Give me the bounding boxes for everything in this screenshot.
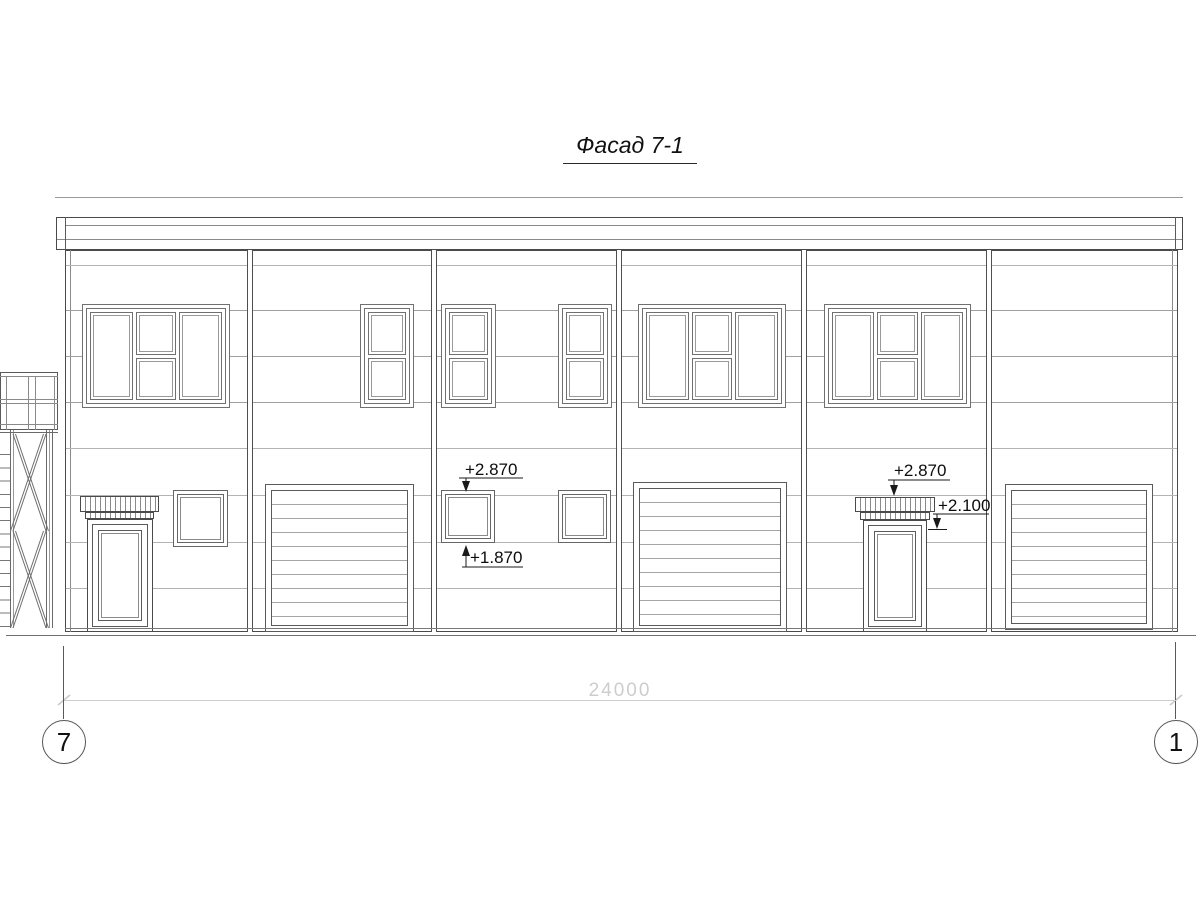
grid-extension-line-left bbox=[63, 646, 64, 719]
annex-glazing-bar bbox=[0, 376, 58, 377]
annex-glazing bbox=[0, 372, 58, 430]
window-pane bbox=[179, 312, 222, 400]
annex-rail bbox=[49, 430, 50, 628]
facade-elevation-drawing: Фасад 7-1 bbox=[0, 0, 1200, 900]
window-pane bbox=[177, 494, 224, 543]
large-window-bay5 bbox=[824, 304, 971, 408]
annex-mullion bbox=[54, 376, 55, 430]
wall-right-inner-line bbox=[1172, 250, 1173, 632]
grid-axis-circle-right: 1 bbox=[1154, 720, 1198, 764]
grid-axis-label-right: 1 bbox=[1169, 727, 1183, 758]
annex-rail bbox=[52, 430, 53, 628]
ladder bbox=[0, 442, 10, 629]
window-pane bbox=[877, 358, 917, 401]
annex-glazing-bar bbox=[0, 399, 58, 400]
window-pane bbox=[646, 312, 689, 400]
small-window-bay1 bbox=[173, 490, 228, 547]
door-canopy-right-upper bbox=[855, 497, 935, 512]
annex-rail bbox=[46, 430, 47, 628]
grid-axis-label-left: 7 bbox=[57, 727, 71, 758]
window-mid-section bbox=[692, 312, 733, 400]
drawing-title: Фасад 7-1 bbox=[563, 132, 697, 164]
parapet-right-cap-line bbox=[1175, 217, 1176, 250]
parapet-band bbox=[56, 217, 1183, 250]
narrow-window-bay3-right bbox=[558, 304, 612, 408]
window-pane bbox=[368, 312, 406, 355]
window-pane bbox=[90, 312, 133, 400]
window-pane bbox=[566, 312, 604, 355]
column-line bbox=[616, 250, 622, 632]
annex-mullion bbox=[28, 376, 29, 430]
window-pane bbox=[692, 358, 733, 401]
entry-door-right bbox=[863, 520, 927, 632]
garage-door-bay4 bbox=[633, 482, 787, 632]
large-window-bay1 bbox=[82, 304, 230, 408]
window-frame bbox=[828, 308, 967, 404]
annex-glazing-bar bbox=[0, 424, 58, 425]
dimension-label: 24000 bbox=[568, 680, 672, 702]
small-window-bay3-right bbox=[558, 490, 611, 543]
small-window-bay3-left bbox=[441, 490, 495, 543]
elevation-annotation-right-bottom: +2.100 bbox=[938, 496, 990, 516]
window-pane bbox=[449, 358, 488, 401]
window-mid-section bbox=[877, 312, 917, 400]
parapet-left-cap-line bbox=[65, 217, 66, 250]
window-pane bbox=[832, 312, 874, 400]
window-pane bbox=[877, 312, 917, 355]
annex-mullion bbox=[35, 376, 36, 430]
door-leaf bbox=[874, 531, 916, 621]
window-mid-section bbox=[136, 312, 177, 400]
door-canopy-left-upper bbox=[80, 496, 159, 512]
elevation-annotation-mid-top: +2.870 bbox=[465, 460, 517, 480]
elevation-annotation-mid-bottom: +1.870 bbox=[470, 548, 522, 568]
column-line bbox=[986, 250, 992, 632]
roof-edge-line bbox=[55, 197, 1183, 198]
wall-left-inner-line bbox=[70, 250, 71, 632]
narrow-window-bay2 bbox=[360, 304, 414, 408]
narrow-window-bay3-left bbox=[441, 304, 496, 408]
door-canopy-left-lower bbox=[85, 512, 154, 519]
grid-axis-circle-left: 7 bbox=[42, 720, 86, 764]
window-pane bbox=[368, 358, 406, 401]
parapet-joint-line bbox=[65, 225, 1175, 226]
window-pane bbox=[735, 312, 778, 400]
column-line bbox=[801, 250, 807, 632]
ground-line bbox=[6, 635, 1196, 636]
large-window-bay4 bbox=[638, 304, 786, 408]
elevation-annotation-right-top: +2.870 bbox=[894, 461, 946, 481]
garage-door-slats bbox=[271, 490, 408, 626]
annex-mullion bbox=[6, 376, 7, 430]
garage-door-bay2 bbox=[265, 484, 414, 632]
window-frame bbox=[562, 308, 608, 404]
grid-extension-line-right bbox=[1175, 642, 1176, 719]
garage-door-bay6 bbox=[1005, 484, 1153, 630]
base-plinth-strip bbox=[65, 628, 1178, 635]
window-frame bbox=[642, 308, 782, 404]
annex-rail bbox=[13, 430, 14, 628]
column-line bbox=[431, 250, 437, 632]
garage-door-slats bbox=[1011, 490, 1147, 624]
window-pane bbox=[136, 312, 177, 355]
entry-door-left bbox=[87, 519, 153, 632]
window-pane bbox=[445, 494, 491, 539]
window-pane bbox=[566, 358, 604, 401]
window-pane bbox=[136, 358, 177, 401]
window-frame bbox=[364, 308, 410, 404]
column-line bbox=[247, 250, 253, 632]
door-leaf bbox=[98, 530, 142, 621]
window-frame bbox=[86, 308, 226, 404]
door-canopy-right-lower bbox=[860, 512, 930, 520]
window-pane bbox=[562, 494, 607, 539]
annex-rail bbox=[10, 430, 11, 628]
annex-x-bracing bbox=[11, 434, 49, 628]
window-frame bbox=[445, 308, 492, 404]
parapet-joint-line bbox=[57, 239, 1182, 240]
window-pane bbox=[921, 312, 963, 400]
garage-door-slats bbox=[639, 488, 781, 626]
annex-glazing-bar bbox=[0, 403, 58, 404]
window-pane bbox=[692, 312, 733, 355]
window-pane bbox=[449, 312, 488, 355]
annex-top-rail bbox=[0, 432, 58, 433]
